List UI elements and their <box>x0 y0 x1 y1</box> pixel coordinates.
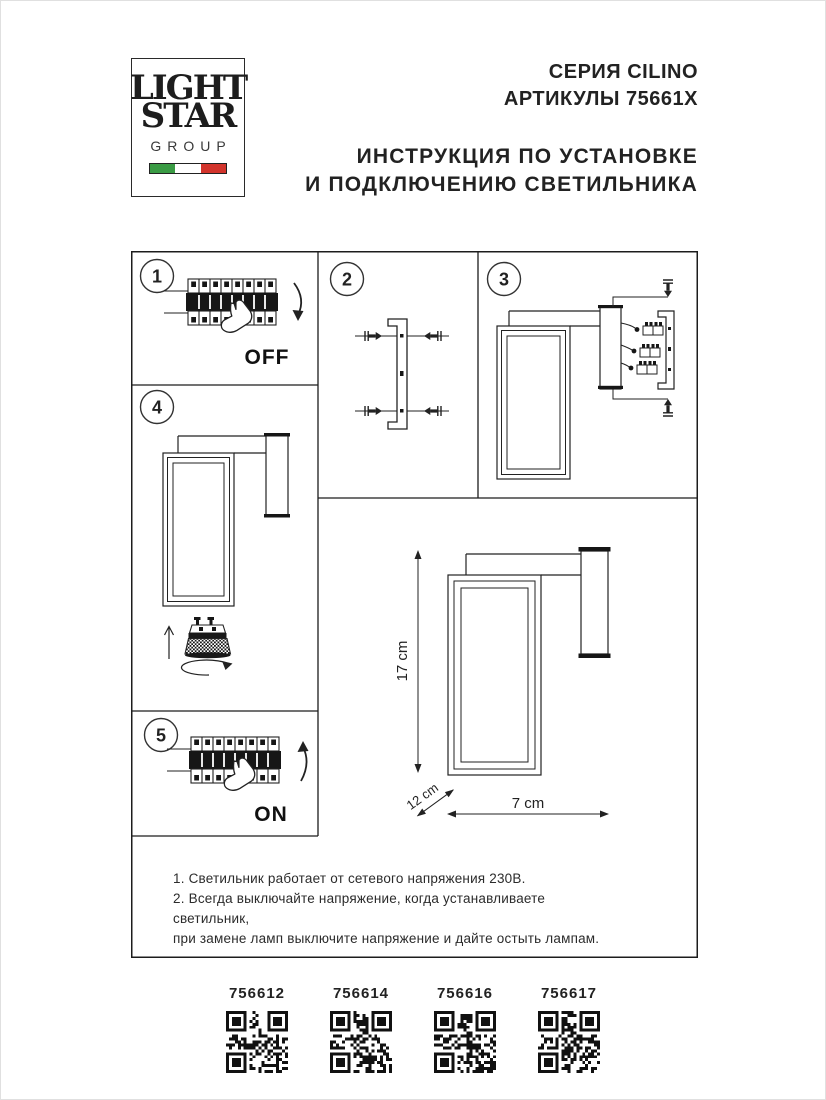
series-title: СЕРИЯ CILINO <box>504 59 698 86</box>
qr-code <box>538 1011 600 1073</box>
product-list: 756612 756614 756616 756617 <box>226 985 600 1073</box>
logo-word-group: GROUP <box>150 138 231 154</box>
width-dimension-label: 7 cm <box>512 795 545 812</box>
article-number: 756614 <box>333 985 389 1002</box>
lamp-frame-icon <box>497 326 570 479</box>
wall-plate-icon <box>598 305 623 389</box>
italian-flag-icon <box>149 163 227 174</box>
lamp-frame-icon <box>448 575 541 775</box>
safety-notes: 1. Светильник работает от сетевого напря… <box>173 869 613 949</box>
articles-title: АРТИКУЛЫ 75661X <box>504 86 698 113</box>
product-item: 756612 <box>226 985 288 1073</box>
step1-label: OFF <box>245 346 290 369</box>
step3-number: 3 <box>499 270 509 290</box>
step5-number: 5 <box>156 726 166 746</box>
page-title-line2: И ПОДКЛЮЧЕНИЮ СВЕТИЛЬНИКА <box>305 171 698 199</box>
step4-number: 4 <box>152 398 162 418</box>
note-line: 2. Всегда выключайте напряжение, когда у… <box>173 889 613 929</box>
article-number: 756616 <box>437 985 493 1002</box>
product-item: 756617 <box>538 985 600 1073</box>
article-number: 756617 <box>541 985 597 1002</box>
wall-plate-icon <box>264 433 290 518</box>
lightstar-logo: LIGHT STAR GROUP <box>131 58 245 197</box>
qr-code <box>226 1011 288 1073</box>
page-title-line1: ИНСТРУКЦИЯ ПО УСТАНОВКЕ <box>305 143 698 171</box>
lamp-frame-icon <box>163 453 234 606</box>
instruction-page: LIGHT STAR GROUP СЕРИЯ CILINO АРТИКУЛЫ 7… <box>0 0 826 1100</box>
qr-code <box>434 1011 496 1073</box>
note-line: при замене ламп выключите напряжение и д… <box>173 929 613 949</box>
product-item: 756614 <box>330 985 392 1073</box>
article-number: 756612 <box>229 985 285 1002</box>
step2-number: 2 <box>342 270 352 290</box>
header-product-block: СЕРИЯ CILINO АРТИКУЛЫ 75661X <box>504 59 698 113</box>
product-item: 756616 <box>434 985 496 1073</box>
logo-word-star: STAR <box>141 103 236 131</box>
height-dimension-label: 17 cm <box>394 641 411 682</box>
wall-plate-icon <box>579 547 611 658</box>
page-title: ИНСТРУКЦИЯ ПО УСТАНОВКЕ И ПОДКЛЮЧЕНИЮ СВ… <box>305 143 698 198</box>
step1-number: 1 <box>152 267 162 287</box>
qr-code <box>330 1011 392 1073</box>
note-line: 1. Светильник работает от сетевого напря… <box>173 869 613 889</box>
step5-label: ON <box>254 803 288 826</box>
installation-diagram: 1 OFF 2 3 <box>131 251 698 958</box>
